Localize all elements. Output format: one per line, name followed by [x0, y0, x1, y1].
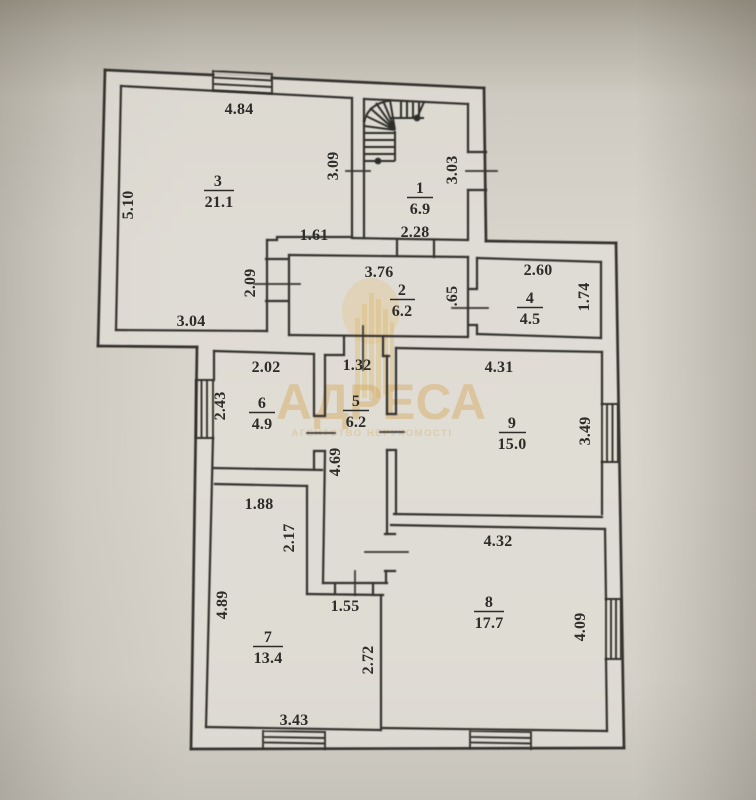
svg-text:2.28: 2.28	[401, 224, 430, 241]
svg-text:5.10: 5.10	[120, 191, 137, 220]
svg-text:4: 4	[526, 290, 534, 307]
svg-text:1.74: 1.74	[576, 283, 593, 312]
svg-text:13.4: 13.4	[254, 650, 283, 667]
svg-text:4.69: 4.69	[327, 448, 344, 477]
svg-text:6.2: 6.2	[346, 414, 367, 431]
svg-text:2.09: 2.09	[242, 269, 259, 298]
svg-text:1.61: 1.61	[300, 227, 329, 244]
svg-text:1: 1	[416, 180, 424, 197]
svg-text:АДРЕСА: АДРЕСА	[276, 374, 486, 430]
svg-text:3.04: 3.04	[177, 313, 206, 330]
svg-text:3.03: 3.03	[444, 156, 461, 185]
svg-text:.65: .65	[444, 286, 461, 307]
svg-text:6.2: 6.2	[392, 303, 413, 320]
svg-text:15.0: 15.0	[498, 436, 527, 453]
svg-text:3.76: 3.76	[365, 264, 394, 281]
svg-text:4.5: 4.5	[520, 311, 541, 328]
svg-text:4.84: 4.84	[225, 101, 254, 118]
svg-text:4.32: 4.32	[484, 533, 513, 550]
svg-text:7: 7	[264, 629, 272, 646]
svg-text:6: 6	[258, 395, 266, 412]
svg-text:4.9: 4.9	[252, 416, 273, 433]
svg-text:2.72: 2.72	[360, 646, 377, 675]
svg-text:4.09: 4.09	[572, 613, 589, 642]
svg-text:3.43: 3.43	[280, 712, 309, 729]
svg-text:5: 5	[352, 393, 360, 410]
svg-text:2.60: 2.60	[524, 262, 553, 279]
svg-text:8: 8	[485, 594, 493, 611]
svg-text:6.9: 6.9	[410, 201, 431, 218]
svg-text:4.31: 4.31	[485, 359, 514, 376]
svg-text:2: 2	[398, 282, 406, 299]
svg-text:2.02: 2.02	[252, 359, 281, 376]
svg-text:1.32: 1.32	[343, 357, 372, 374]
svg-text:3.49: 3.49	[577, 417, 594, 446]
svg-text:3: 3	[214, 173, 222, 190]
svg-text:9: 9	[508, 415, 516, 432]
svg-text:2.43: 2.43	[212, 392, 229, 421]
svg-text:4.89: 4.89	[214, 591, 231, 620]
svg-text:3.09: 3.09	[325, 152, 342, 181]
svg-text:1.88: 1.88	[245, 496, 274, 513]
svg-text:1.55: 1.55	[331, 598, 360, 615]
svg-text:17.7: 17.7	[475, 615, 504, 632]
svg-text:21.1: 21.1	[205, 194, 234, 211]
svg-text:2.17: 2.17	[281, 524, 298, 553]
